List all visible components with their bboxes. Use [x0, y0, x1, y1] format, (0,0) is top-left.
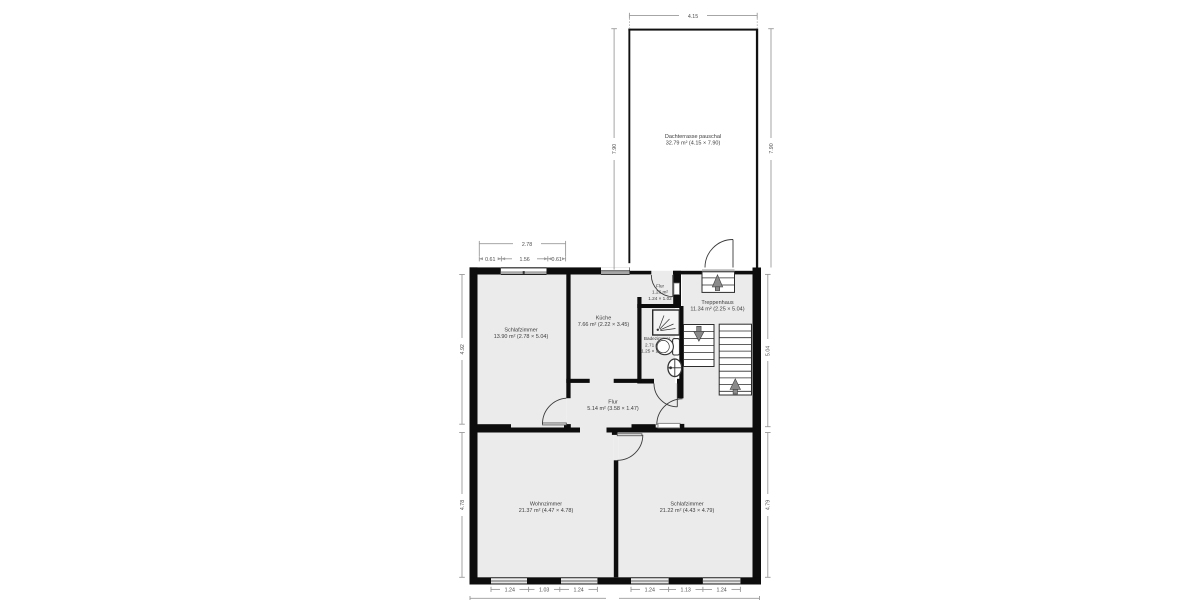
svg-text:1.13: 1.13 — [681, 588, 691, 594]
svg-text:1.24: 1.24 — [645, 588, 655, 594]
svg-text:Wohnzimmer: Wohnzimmer — [530, 501, 562, 507]
svg-text:1.56: 1.56 — [519, 257, 529, 263]
svg-text:11.34 m² (2.25 × 5.04): 11.34 m² (2.25 × 5.04) — [690, 306, 744, 312]
svg-text:5.04: 5.04 — [766, 346, 772, 356]
svg-text:5.14 m² (3.58 × 1.47): 5.14 m² (3.58 × 1.47) — [587, 406, 639, 412]
svg-text:Flur: Flur — [608, 399, 618, 405]
svg-text:4.79: 4.79 — [766, 500, 772, 510]
svg-text:2.78: 2.78 — [522, 242, 532, 248]
svg-text:1.24: 1.24 — [573, 588, 583, 594]
svg-text:13.90 m² (2.78 × 5.04): 13.90 m² (2.78 × 5.04) — [494, 334, 549, 340]
svg-text:1.03: 1.03 — [539, 588, 549, 594]
svg-text:7.66 m² (2.22 × 3.45): 7.66 m² (2.22 × 3.45) — [578, 322, 630, 328]
svg-text:4.92: 4.92 — [460, 344, 466, 354]
svg-text:1.24: 1.24 — [505, 588, 515, 594]
svg-text:Dachterrasse pauschal: Dachterrasse pauschal — [665, 134, 721, 140]
svg-text:1.24: 1.24 — [716, 588, 726, 594]
svg-text:Küche: Küche — [596, 315, 612, 321]
svg-text:Schlafzimmer: Schlafzimmer — [670, 501, 703, 507]
svg-text:7.90: 7.90 — [612, 144, 618, 154]
svg-text:Treppenhaus: Treppenhaus — [701, 300, 733, 306]
svg-text:Flur: Flur — [656, 283, 665, 288]
svg-text:Schlafzimmer: Schlafzimmer — [504, 327, 537, 333]
svg-text:32.79 m² (4.15 × 7.90): 32.79 m² (4.15 × 7.90) — [666, 140, 721, 146]
svg-text:0.61: 0.61 — [485, 257, 495, 263]
svg-text:4.78: 4.78 — [460, 500, 466, 510]
svg-text:21.22 m² (4.43 × 4.79): 21.22 m² (4.43 × 4.79) — [660, 508, 715, 514]
svg-text:4.15: 4.15 — [688, 14, 698, 20]
svg-text:7.90: 7.90 — [769, 143, 775, 153]
svg-text:21.37 m² (4.47 × 4.78): 21.37 m² (4.47 × 4.78) — [519, 508, 574, 514]
svg-text:0.61: 0.61 — [552, 257, 562, 263]
